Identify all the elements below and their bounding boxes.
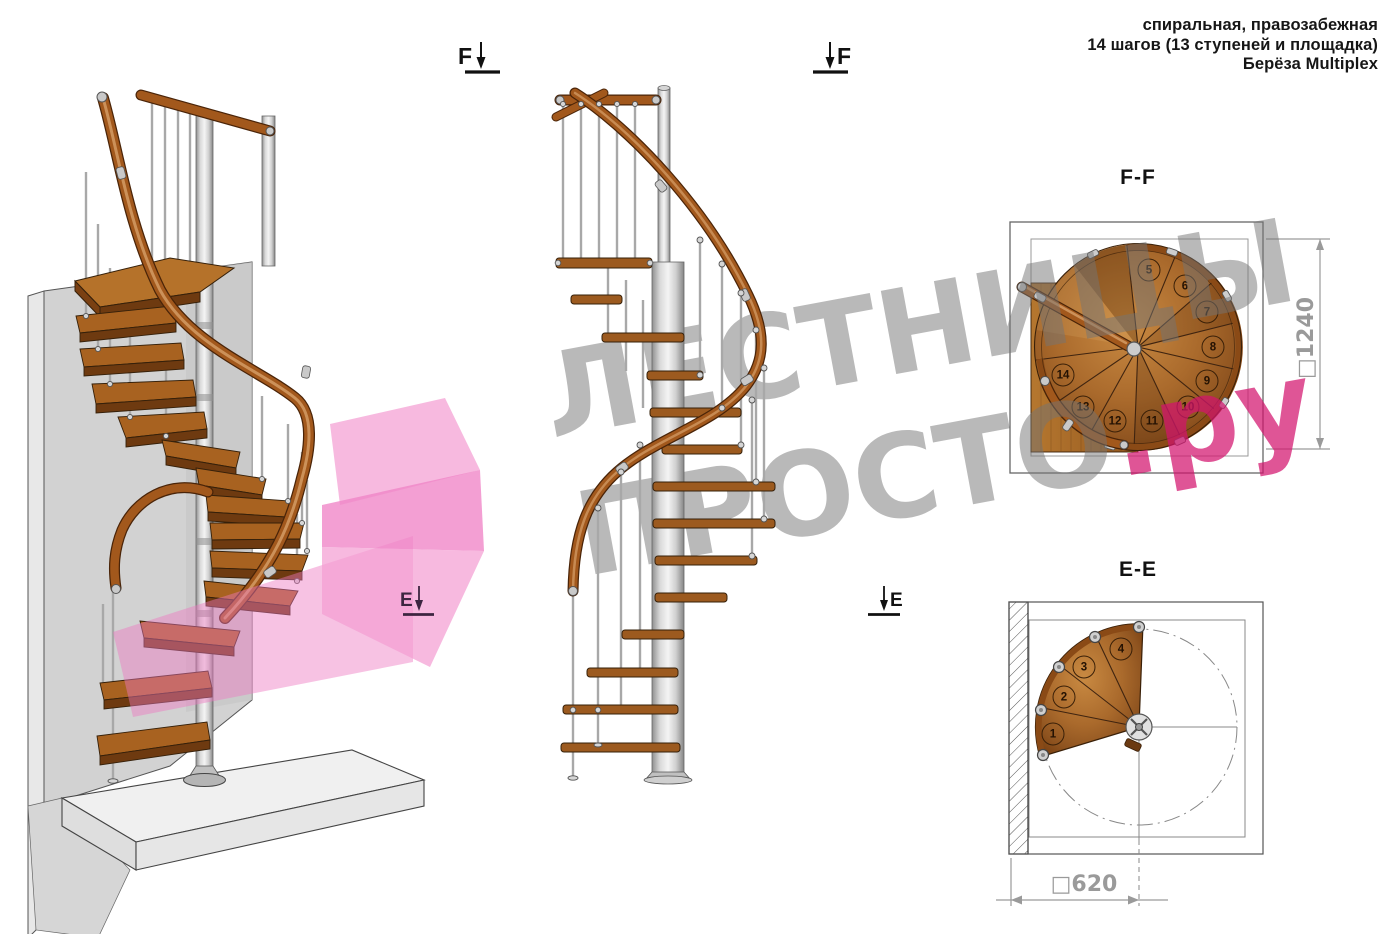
watermark: ЛЕСТНИЦЫ ПРОСТО.ру [464, 178, 1400, 621]
stair-material: Берёза Multiplex [1087, 55, 1378, 75]
down-arrow-icon [415, 600, 423, 611]
stair-circumference-centerline [1041, 629, 1237, 825]
wall [28, 262, 252, 934]
section-marker-f-right: F [806, 36, 862, 78]
svg-text:E: E [400, 590, 413, 611]
title-block: спиральная, правозабежная 14 шагов (13 с… [1087, 16, 1378, 75]
section-marker-e-right: E [858, 582, 910, 622]
svg-text:F: F [458, 43, 472, 69]
svg-text:F: F [837, 43, 851, 69]
down-arrow-icon [477, 57, 486, 69]
drawing-sheet: 5678910111213141234 ЛЕСТНИЦЫ ПРОСТО.ру [0, 0, 1400, 934]
landing-corner-post [262, 116, 275, 266]
treads [76, 306, 308, 765]
plan-ee-dimension [996, 858, 1168, 906]
svg-text:E: E [890, 590, 903, 611]
baluster-heads [1036, 622, 1145, 761]
dimension-620: □620 [1044, 872, 1124, 898]
plan-ff-title: F-F [1106, 166, 1170, 190]
center-pole [184, 111, 226, 787]
connectors [83, 313, 309, 783]
stair-type: спиральная, правозабежная [1087, 16, 1378, 36]
step-number-bubble: 3 [1073, 656, 1096, 679]
step-number-bubble: 1 [1042, 723, 1065, 746]
plan-ee-pole-hub [1124, 714, 1152, 752]
landing-platform [75, 258, 234, 317]
down-arrow-icon [826, 57, 835, 69]
section-marker-e-left: E [394, 582, 444, 622]
stair-steps-count: 14 шагов (13 ступеней и площадка) [1087, 36, 1378, 56]
plan-ee-title: E-E [1106, 558, 1170, 582]
floor-slab [62, 750, 424, 870]
down-arrow-icon [880, 600, 888, 611]
balusters [86, 100, 307, 779]
step-number-bubble: 4 [1110, 638, 1133, 661]
plan-ee-step-fan [1036, 622, 1145, 761]
plan-ee-view [996, 602, 1263, 906]
section-marker-f-left: F [452, 36, 508, 78]
step-number-bubble: 2 [1053, 686, 1076, 709]
handrail [97, 92, 311, 618]
wall-hatch [1009, 602, 1028, 854]
